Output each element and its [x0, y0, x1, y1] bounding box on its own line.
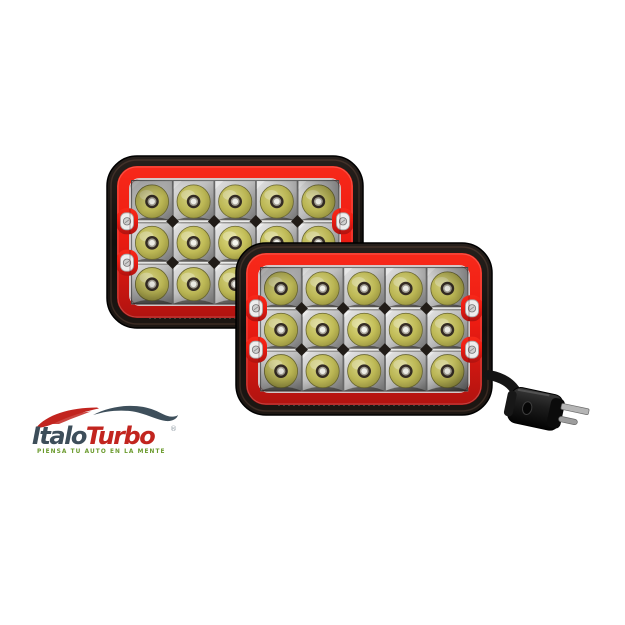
brand-logo: ItaloTurbo ® PIENSA TU AUTO EN LA MENTE	[32, 406, 178, 455]
logo-car-rear-swoosh	[93, 406, 178, 421]
registered-mark: ®	[170, 425, 177, 433]
headlight-front	[236, 243, 492, 415]
product-image: ItaloTurbo ® PIENSA TU AUTO EN LA MENTE	[0, 0, 625, 625]
brand-name-italo: Italo	[32, 422, 87, 450]
brand-name: ItaloTurbo	[32, 422, 155, 450]
plug-prong	[558, 416, 578, 425]
product-photo: ItaloTurbo ® PIENSA TU AUTO EN LA MENTE	[0, 0, 625, 625]
power-connector	[489, 375, 591, 437]
brand-tagline: PIENSA TU AUTO EN LA MENTE	[37, 449, 166, 455]
brand-name-turbo: Turbo	[86, 422, 155, 450]
plug-prong	[561, 403, 590, 415]
